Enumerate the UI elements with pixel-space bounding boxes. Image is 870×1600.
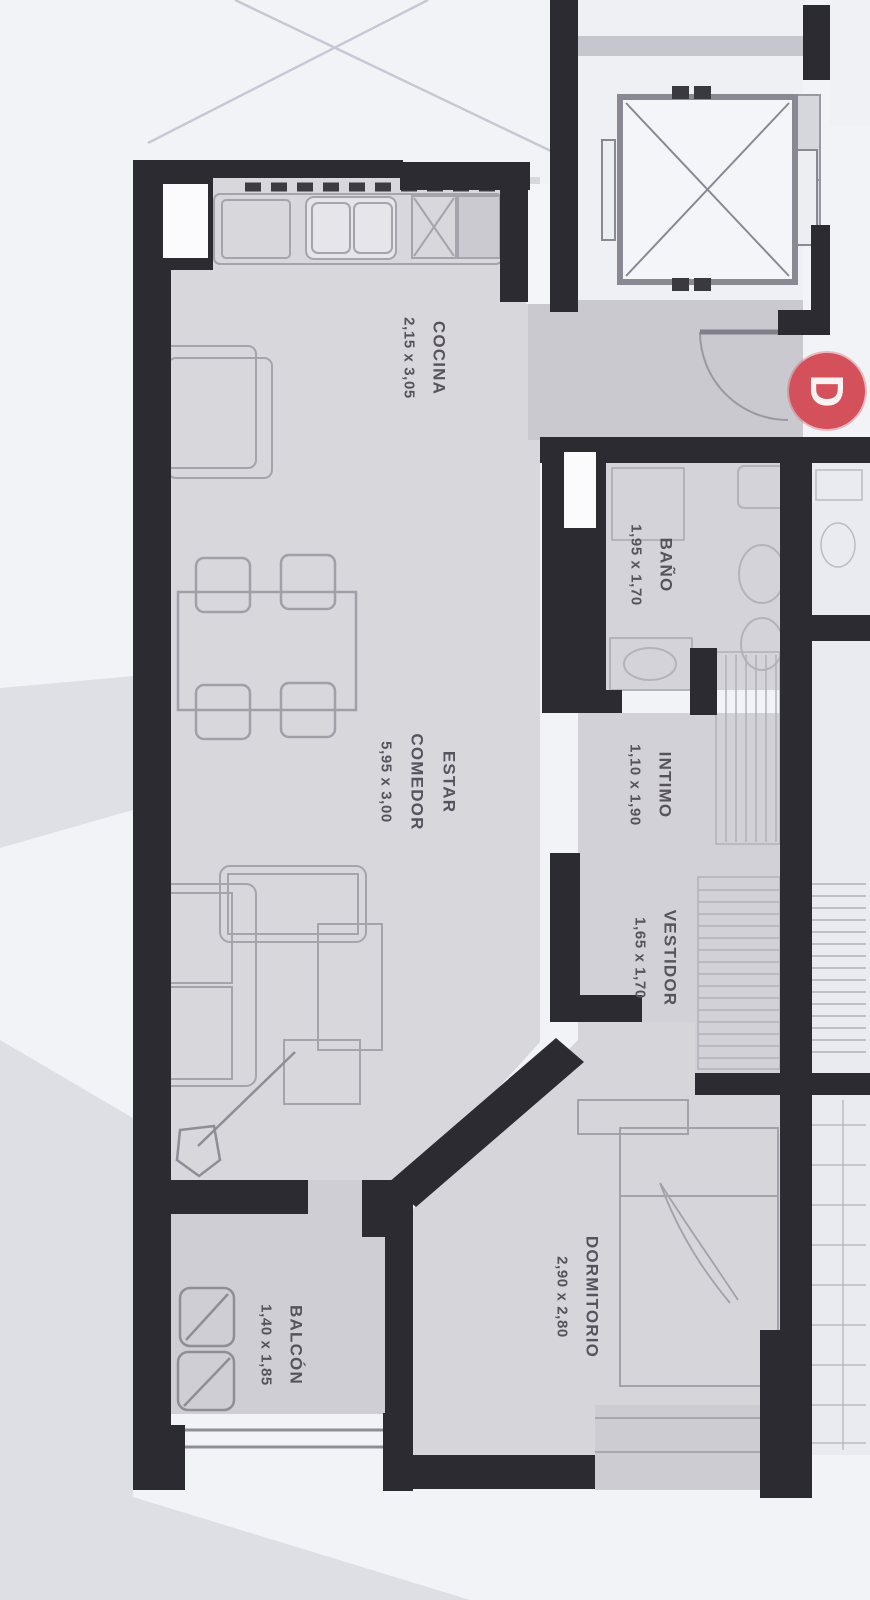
elevator-symbol: [602, 86, 817, 291]
kitchen-window: [163, 184, 208, 258]
bath-duct: [564, 452, 596, 528]
unit-d-badge: D: [789, 353, 865, 429]
construction-x-lines: [148, 0, 553, 152]
elevator-lobby: [602, 86, 820, 291]
shaft-opening: [528, 190, 550, 300]
floorplan-drawing: [0, 0, 870, 1600]
balcony-railing: [171, 1430, 412, 1447]
kitchen-fridge: [458, 196, 500, 258]
kitchen-sink: [306, 197, 396, 259]
unit-letter: D: [804, 374, 850, 407]
floorplan-photo: COCINA 2,15 x 3,05 BAÑO 1,95 x 1,70 ESTA…: [0, 0, 870, 1600]
